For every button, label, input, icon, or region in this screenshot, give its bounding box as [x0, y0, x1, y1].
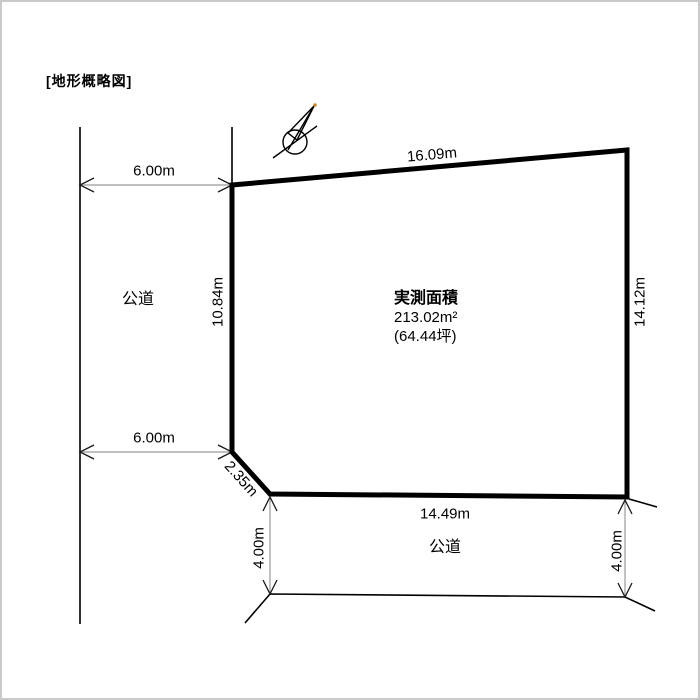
dim-label-west-road-top: 6.00m: [133, 164, 175, 179]
edge-label-bottom: 14.49m: [420, 507, 470, 522]
road-south-near-diagonal: [629, 499, 657, 507]
area-square-meters: 213.02m²: [394, 308, 458, 327]
dim-label-west-road-bottom: 6.00m: [133, 431, 175, 446]
dim-label-south-road-right: 4.00m: [610, 530, 625, 572]
road-boundary-lines: [80, 127, 657, 624]
dimension-arrowheads: [80, 178, 632, 597]
road-west-label: 公道: [122, 292, 154, 308]
edge-label-right: 14.12m: [633, 277, 648, 327]
edge-label-top: 16.09m: [406, 145, 457, 164]
diagram-canvas: [2, 2, 700, 700]
area-info-block: 実測面積 213.02m² (64.44坪): [394, 289, 458, 346]
road-south-label: 公道: [429, 540, 461, 556]
north-arrow-crossline: [273, 126, 317, 158]
site-plan-diagram: [地形概略図] 6.00m 6.00m 公道 16.09m 10.84m 14.…: [0, 0, 700, 700]
area-title: 実測面積: [394, 289, 458, 308]
area-tsubo: (64.44坪): [394, 327, 458, 346]
dim-label-south-road-left: 4.00m: [252, 527, 267, 569]
edge-label-left: 10.84m: [211, 277, 226, 327]
north-arrow-tip-dot: [313, 103, 317, 107]
diagram-title: [地形概略図]: [46, 74, 132, 88]
dimension-lines: [82, 185, 625, 595]
road-south-far-line: [245, 594, 655, 623]
north-arrow-icon: [273, 103, 317, 158]
north-arrow-needle: [288, 106, 314, 140]
